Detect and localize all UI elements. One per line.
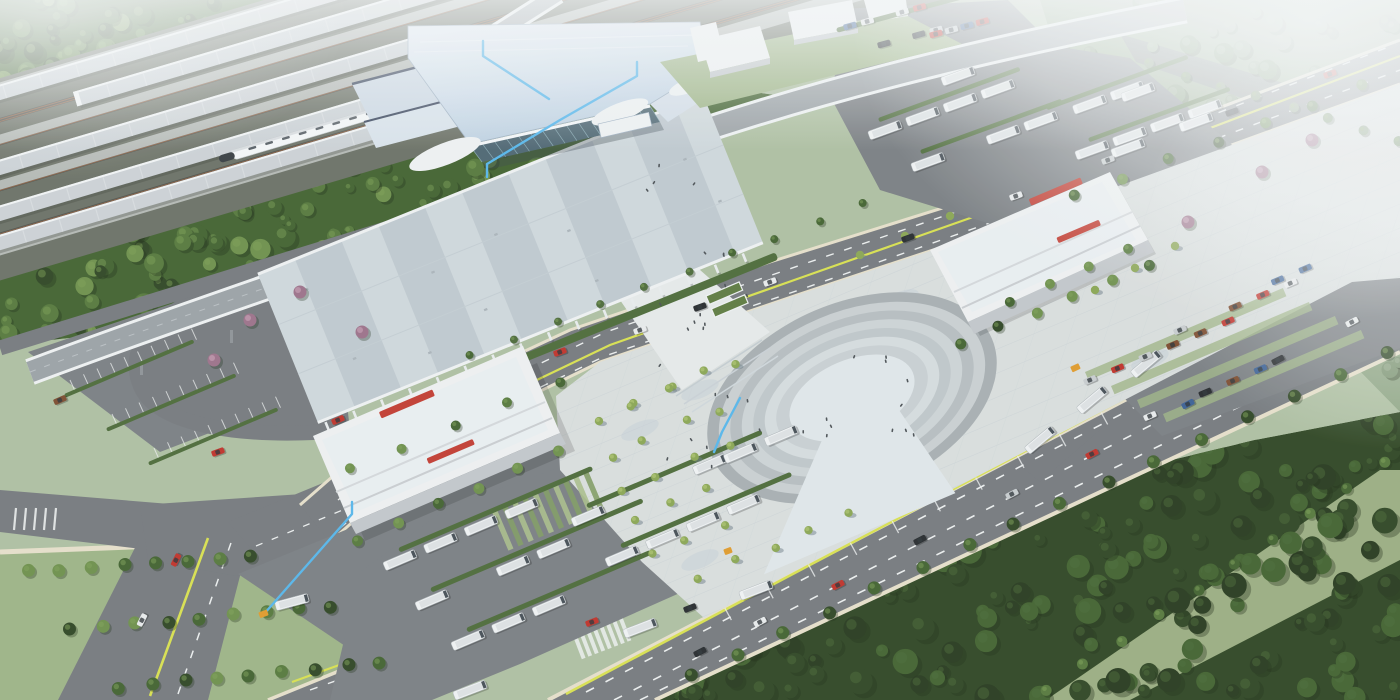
atmospheric-haze [0,0,1400,700]
station-aerial-rendering [0,0,1400,700]
aerial-render-stage [0,0,1400,700]
